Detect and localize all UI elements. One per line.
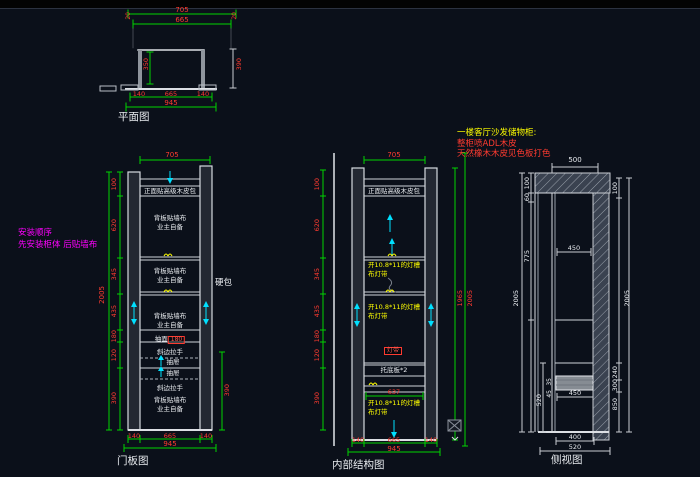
drawing-layer [0,0,700,477]
door-dim: 140 [200,433,212,440]
install-note-title: 安装顺序 [18,229,52,238]
plan-dim: 705 [175,7,188,14]
side-dim: 450 [569,390,581,397]
door-top-note: 正面贴高级木皮包 [144,188,196,195]
light-slot-note: 开10.8*11的灯槽 [368,304,420,311]
side-dim: 300 [612,379,619,391]
side-dim-total: 2005 [513,290,520,307]
door-dim: 390 [111,392,118,404]
spec-note-line2: 天然橡木木皮见色板打色 [457,150,551,159]
internal-view-title: 内部结构图 [332,460,385,471]
plan-dim: 390 [236,58,243,70]
side-dim: 60 [524,193,531,201]
internal-dim: 705 [387,152,400,159]
internal-dim: 120 [314,349,321,361]
side-dim: 500 [568,157,581,164]
internal-dim: 100 [314,178,321,190]
plan-dim: 665 [165,91,177,98]
drawer-face-value: 180 [168,336,185,344]
side-dim: 520 [536,394,543,406]
door-back-note: 背板贴墙布 [154,397,187,404]
drawer-face-label: 抽面 [155,336,168,343]
side-view-title: 侧视图 [551,455,583,466]
door-back-note: 背板贴墙布 [154,215,187,222]
door-dim: 620 [111,219,118,231]
internal-dim: 345 [314,268,321,280]
internal-dim: 665 [388,437,400,444]
side-dim: 100 [612,182,619,194]
side-dim: 240 [612,366,619,378]
door-dim: 390 [224,384,231,396]
plan-dim: 140 [133,91,145,98]
door-dim: 665 [164,433,176,440]
door-dim: 180 [111,330,118,342]
side-dim: 45 [547,390,553,398]
light-slot-note: 布灯带 [368,409,388,416]
internal-top-note: 正面贴高级木皮包 [368,188,420,195]
plan-view-title: 平面图 [118,112,150,123]
spec-note-line1: 整柜喷ADL木皮 [457,140,517,149]
support-board-note: 托底板*2 [381,367,408,374]
light-slot-note: 布灯带 [368,313,388,320]
internal-dim: 637 [388,389,400,396]
side-dim: 520 [569,444,581,451]
door-back-note: 背板贴墙布 [154,313,187,320]
light-strip-tag: 灯带 [384,347,402,355]
side-dim: 100 [524,177,531,189]
side-view-geometry [519,163,632,455]
internal-dim: 140 [352,437,364,444]
internal-dim: 2005 [467,290,474,307]
door-drawer-note: 抽屉 [167,370,180,377]
door-drawer-face-tag: 抽面180 [155,331,185,347]
plan-dim: 140 [197,91,209,98]
door-dim: 120 [111,349,118,361]
door-back-note: 业主自备 [157,322,183,329]
plan-dim: 20 [126,12,132,20]
door-back-note: 业主自备 [157,406,183,413]
door-handle-note: 斜边拉手 [157,385,183,392]
door-drawer-note: 抽屉 [167,359,180,366]
side-dim: 35 [547,378,553,386]
light-slot-note: 布灯带 [368,271,388,278]
internal-dim: 1965 [457,290,464,307]
internal-dim: 435 [314,305,321,317]
door-dim-total: 2005 [99,286,106,304]
side-dim: 775 [524,250,531,262]
door-handle-note: 斜边拉手 [157,349,183,356]
door-dim: 100 [111,178,118,190]
spec-note-title: 一楼客厅沙发储物柜: [457,129,536,138]
internal-dim: 140 [425,437,437,444]
door-back-note: 背板贴墙布 [154,268,187,275]
install-note-line: 先安装柜体 后贴墙布 [18,241,97,250]
side-dim: 850 [612,398,619,410]
door-dim: 435 [111,305,118,317]
plan-dim: 20 [232,12,238,20]
door-dim-total: 945 [163,441,176,448]
light-slot-note: 开10.8*11的灯槽 [368,400,420,407]
internal-dim: 390 [314,392,321,404]
hard-pack-note: 硬包 [215,279,232,288]
light-slot-note: 开10.8*11的灯槽 [368,262,420,269]
plan-dim: 350 [143,58,150,70]
door-dim: 140 [128,433,140,440]
door-back-note: 业主自备 [157,224,183,231]
plan-dim: 665 [175,17,188,24]
side-dim-total: 2005 [624,290,631,307]
cad-canvas: 安装顺序 先安装柜体 后贴墙布 一楼客厅沙发储物柜: 整柜喷ADL木皮 天然橡木… [0,0,700,477]
side-dim: 450 [568,245,580,252]
door-dim: 345 [111,268,118,280]
door-view-title: 门板图 [117,456,149,467]
internal-dim: 620 [314,219,321,231]
door-dim: 705 [165,152,178,159]
side-dim: 400 [569,434,581,441]
plan-dim-total: 945 [164,100,177,107]
internal-dim: 180 [314,330,321,342]
internal-dim-total: 945 [387,446,400,453]
door-back-note: 业主自备 [157,277,183,284]
